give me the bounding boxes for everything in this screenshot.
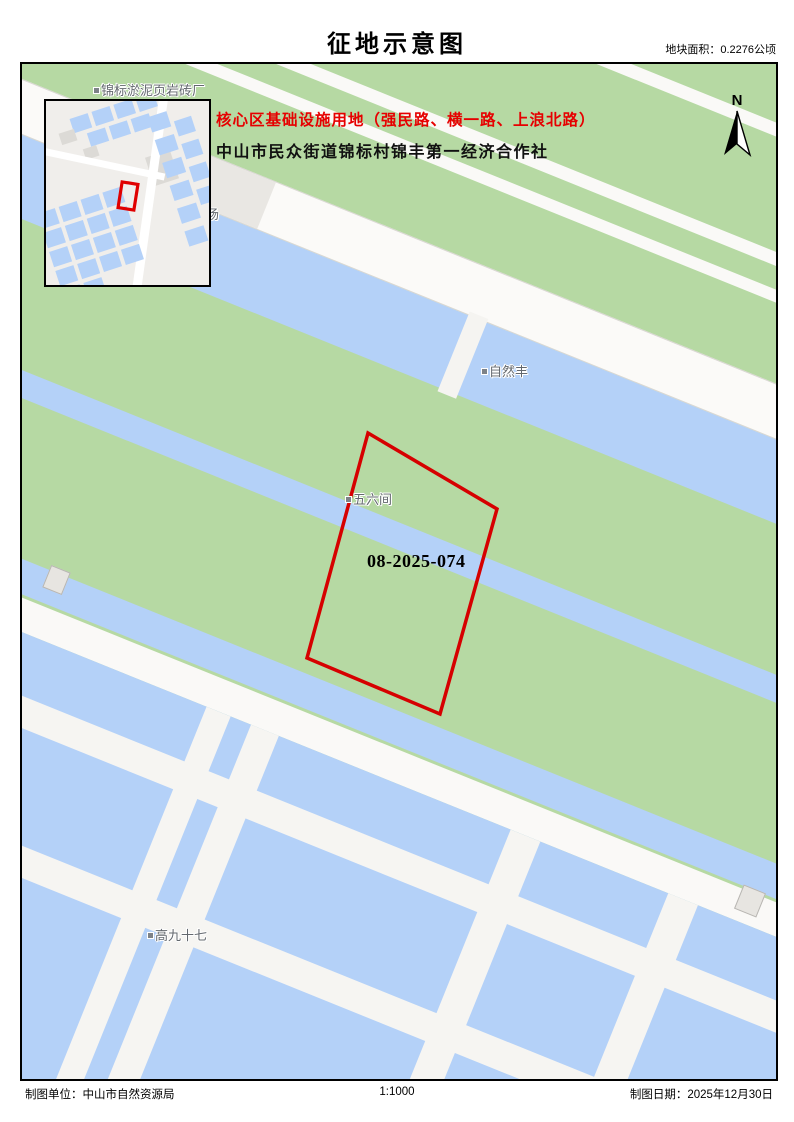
- compass-needle-icon: [713, 109, 761, 161]
- inset-locator-map: [44, 99, 211, 287]
- north-label: N: [713, 92, 761, 109]
- map-canvas: 锦标淤泥页岩砖厂 场 自然丰 五六间 高九十七 08-2025-074 核心区基…: [20, 62, 778, 1081]
- poi-label-ziranfeng: 自然丰: [482, 361, 528, 380]
- plot-area-note: 地块面积：0.2276公顷: [665, 41, 776, 57]
- footer-map-date: 制图日期：2025年12月30日: [630, 1086, 773, 1102]
- parcel-code-label: 08-2025-074: [367, 551, 487, 572]
- north-arrow: N: [713, 92, 761, 162]
- poi-label-factory: 锦标淤泥页岩砖厂: [94, 80, 205, 99]
- pond-divider-path: [438, 312, 489, 399]
- poi-label-wuliujian: 五六间: [346, 489, 392, 508]
- poi-marker-icon: [346, 497, 351, 502]
- inset-map-graphic: [46, 101, 209, 285]
- owner-name-label: 中山市民众街道锦标村锦丰第一经济合作社: [216, 138, 549, 162]
- poi-marker-icon: [482, 369, 487, 374]
- poi-marker-icon: [148, 933, 153, 938]
- project-name-label: 核心区基础设施用地（强民路、横一路、上浪北路）: [216, 108, 596, 130]
- poi-label-gaojiushiqi: 高九十七: [148, 925, 207, 944]
- poi-marker-icon: [94, 88, 99, 93]
